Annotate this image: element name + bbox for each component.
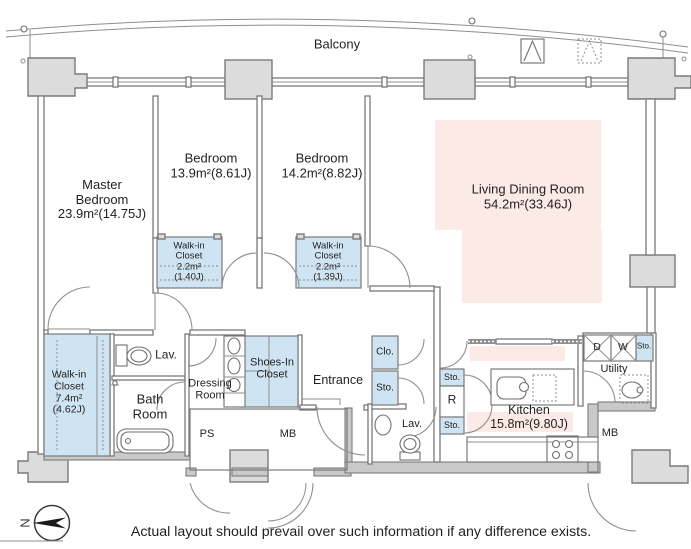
railing-joint-icon [469,18,475,24]
balcony-label: Balcony [314,38,360,53]
washer-label: W [618,342,628,354]
ps-label: PS [200,428,215,440]
railing-joint-icon [660,31,666,37]
entrance-label: Entrance [313,373,363,387]
sto-label: Sto. [444,372,460,382]
lavatory-2-label: Lav. [402,418,422,430]
bedroom-2-label: Bedroom 13.9m²(8.61J) [171,151,252,180]
drain-icon [468,55,472,59]
sto-label: Sto. [637,343,651,352]
mb-label: MB [602,427,619,439]
walk-in-closet-2-label: Walk-in Closet 2.2m² (1.40J) [173,242,204,283]
railing-joint-icon [21,26,27,32]
utility-toilet-icon [620,375,648,403]
shoes-closet-label: Shoes-In Closet [250,357,294,382]
refrigerator-label: R [448,393,457,406]
disclaimer-text: Actual layout should prevail over such i… [131,525,591,541]
toilet-icon [116,345,151,366]
entrance-step-line [302,399,340,405]
sto-label: Sto. [376,382,394,393]
window-mullion [510,77,515,87]
dressing-room-label: Dressing Room [188,378,231,403]
living-dining-label: Living Dining Room 54.2m²(33.46J) [472,182,585,211]
utility-label: Utility [601,363,628,375]
bathtub-icon [117,429,173,453]
master-bedroom-label: Master Bedroom 23.9m²(14.75J) [58,178,146,222]
toilet-icon [400,435,420,460]
window-mullion [586,77,591,87]
compass-north-label: N [17,518,32,527]
faucet-icon [520,383,529,392]
window-mullion [382,77,387,87]
lavatory-1-label: Lav. [155,348,177,361]
dryer-label: D [593,342,601,354]
drain-icon [682,57,686,61]
kitchen-island-icon [491,369,574,405]
floor-plan-drawing: N [0,0,691,549]
bedroom-3-label: Bedroom 14.2m²(8.82J) [282,151,363,180]
kitchen-label: Kitchen 15.8m²(9.80J) [490,403,568,431]
window-mullion [113,77,118,87]
bath-room-label: Bath Room [133,392,168,421]
drain-icon [21,59,25,63]
window-mullion [186,77,191,87]
ac-unit-icon [521,39,544,63]
window-band [75,77,628,87]
walk-in-closet-master-label: Walk-in Closet 7.4m² (4.62J) [52,370,87,417]
clo-label: Clo. [376,346,394,357]
mb-label: MB [280,428,297,440]
living-dining-highlight-lower [462,230,602,303]
floor-plan: N Balcony Master Bedroom 23.9m²(14.75J) … [0,0,691,549]
kitchen-highlight-upper [470,346,565,361]
washbasin-icon [375,415,391,435]
living-dining-highlight [435,120,601,230]
walk-in-closet-3-label: Walk-in Closet 2.2m² (1.39J) [312,242,343,283]
sto-label: Sto. [444,420,460,430]
washer-dryer-icons [584,335,636,361]
compass-rose: N [17,506,69,541]
